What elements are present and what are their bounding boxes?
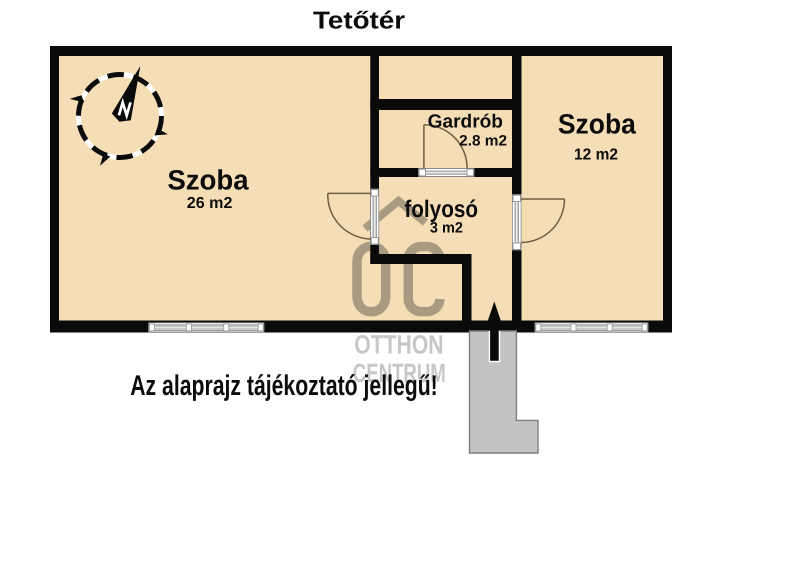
- svg-text:3 m2: 3 m2: [430, 220, 463, 237]
- svg-text:Tetőtér: Tetőtér: [313, 8, 406, 35]
- svg-text:Szoba: Szoba: [167, 164, 249, 195]
- svg-text:Gardrób: Gardrób: [428, 112, 503, 133]
- svg-text:OTTHON: OTTHON: [354, 330, 443, 360]
- svg-text:Szoba: Szoba: [558, 108, 636, 139]
- svg-text:12 m2: 12 m2: [574, 146, 618, 163]
- svg-text:26 m2: 26 m2: [187, 195, 233, 212]
- svg-text:Az alaprajz tájékoztató jelleg: Az alaprajz tájékoztató jellegű!: [130, 370, 438, 402]
- svg-text:2.8 m2: 2.8 m2: [459, 133, 507, 150]
